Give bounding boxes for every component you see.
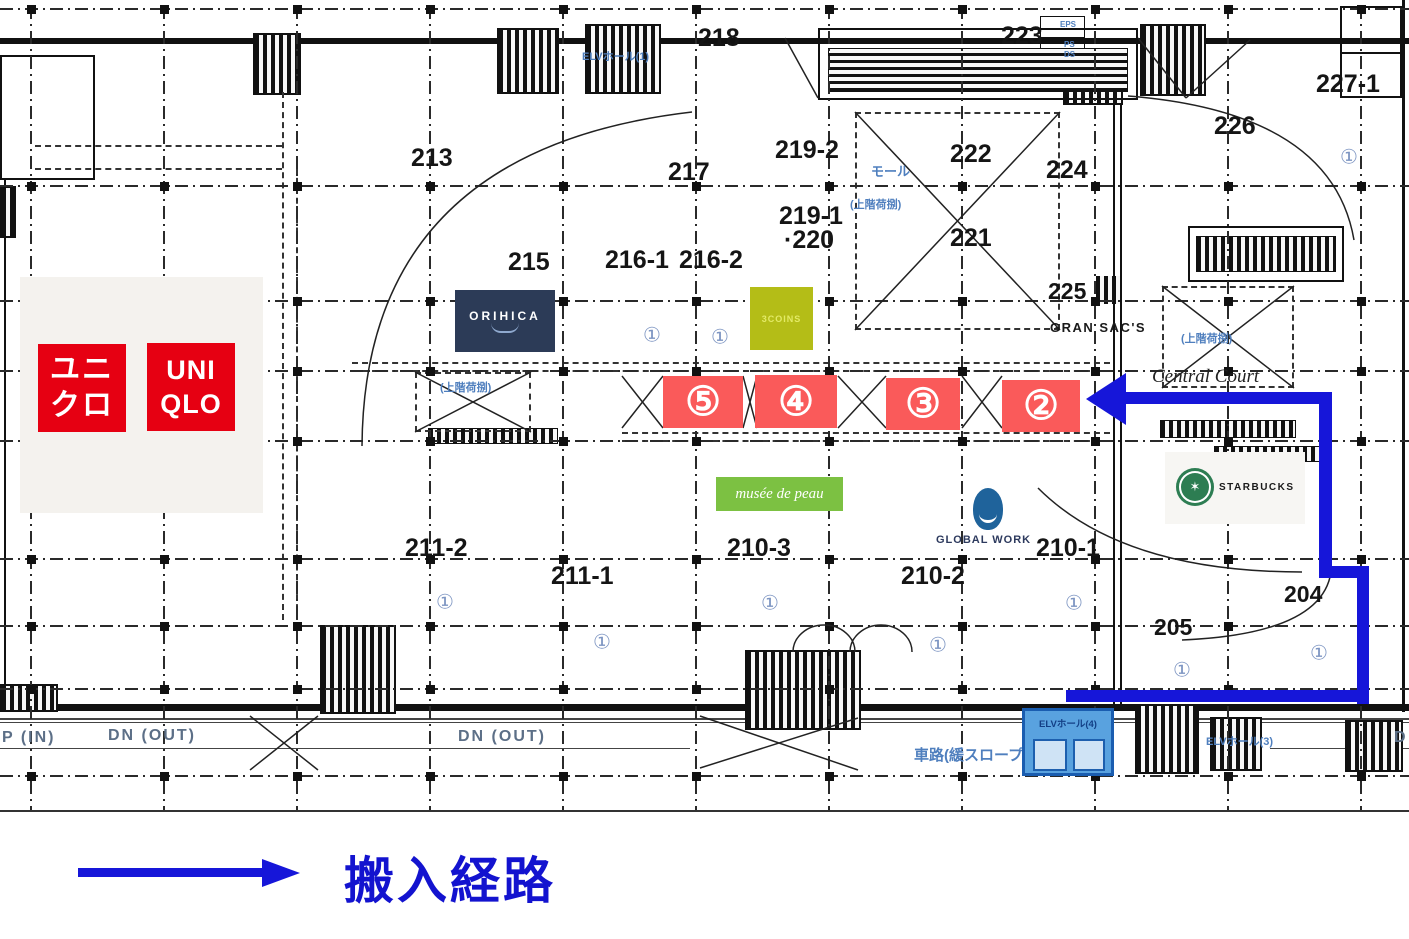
floor-plan: ユニ クロ UNI QLO ORIHICA 3COINS musée de pe… <box>0 0 1409 813</box>
route-segment-bottom <box>1066 690 1369 702</box>
plan-annotation: 車路(緩スロープ) <box>914 744 1028 765</box>
room-label: 223 <box>1001 22 1043 51</box>
elevator-car <box>1033 739 1067 771</box>
plan-annotation: モール <box>871 161 910 180</box>
ramp-label: P (IN) <box>2 729 55 747</box>
legend-arrow-head-icon <box>262 859 300 887</box>
uniqlo-jp-top: ユニ <box>50 352 114 388</box>
plan-annotation: (上階荷捌) <box>850 196 901 212</box>
route-segment-top <box>1120 392 1332 404</box>
room-label: 218 <box>698 24 740 53</box>
uniqlo-jp-square: ユニ クロ <box>38 344 126 432</box>
room-label: 205 <box>1154 614 1192 641</box>
uniqlo-en-bottom: QLO <box>160 387 222 421</box>
three-coins-logo: 3COINS <box>750 287 813 350</box>
plan-annotation: EPS <box>1060 20 1076 29</box>
room-label: 216-1 <box>605 246 669 275</box>
plan-annotation: (上階荷捌) <box>440 379 491 395</box>
room-label: 210-2 <box>901 562 965 591</box>
circled-one-marker: ① <box>1173 658 1191 683</box>
room-label: 210-3 <box>727 534 791 563</box>
ramp-label: DN (OUT) <box>458 728 546 746</box>
room-label: 222 <box>950 140 992 169</box>
musee-de-peau-logo: musée de peau <box>716 477 843 511</box>
starbucks-siren-icon: ✶ <box>1176 468 1214 506</box>
circled-one-marker: ① <box>1065 591 1083 616</box>
room-label: ·220 <box>784 226 834 255</box>
room-label: 211-2 <box>405 534 468 563</box>
route-segment-down-2 <box>1357 566 1369 704</box>
room-label: 227-1 <box>1316 70 1380 99</box>
room-label: 226 <box>1214 112 1256 141</box>
room-label: 221 <box>950 224 992 253</box>
circled-one-marker: ① <box>711 325 729 350</box>
uniqlo-en-top: UNI <box>166 353 216 387</box>
circled-one-marker: ① <box>643 323 661 348</box>
room-label: 225 <box>1048 278 1086 305</box>
plan-annotation: PS <box>1064 40 1075 49</box>
plan-annotation: (上階荷捌) <box>1181 330 1232 346</box>
ramp-label: D <box>1394 729 1408 747</box>
global-work-logo: GLOBAL WORK <box>936 488 1046 550</box>
ramp-label: DN (OUT) <box>108 727 196 745</box>
unit-badge: ④ <box>755 375 837 428</box>
circled-one-marker: ① <box>436 590 454 615</box>
route-segment-down-1 <box>1319 392 1332 578</box>
elevator-hall-4-highlight: ELVホール(4) <box>1022 708 1114 776</box>
floorplan-screenshot: ユニ クロ UNI QLO ORIHICA 3COINS musée de pe… <box>0 0 1409 939</box>
unit-badge: ③ <box>886 378 960 430</box>
uniqlo-en-square: UNI QLO <box>147 343 235 431</box>
elevator-hall-4-label: ELVホール(4) <box>1025 716 1111 730</box>
central-court-label: Central Court <box>1152 366 1259 388</box>
orihica-swoosh <box>491 323 519 333</box>
room-label: 210-1 <box>1036 534 1100 563</box>
three-coins-logo-text: 3COINS <box>762 314 802 324</box>
circled-one-marker: ① <box>761 591 779 616</box>
orihica-logo-text: ORIHICA <box>469 309 541 323</box>
elevator-car <box>1073 739 1105 771</box>
starbucks-logo: ✶ STARBUCKS <box>1165 452 1305 524</box>
room-label: 216-2 <box>679 246 743 275</box>
uniqlo-logo: ユニ クロ UNI QLO <box>20 277 263 513</box>
orihica-logo: ORIHICA <box>455 290 555 352</box>
room-label: 224 <box>1046 156 1088 185</box>
room-label: 211-1 <box>551 562 614 591</box>
global-work-logo-text: GLOBAL WORK <box>936 534 1031 546</box>
plan-annotation: DS <box>1064 50 1075 59</box>
global-work-smile <box>979 512 997 523</box>
circled-one-marker: ① <box>929 633 947 658</box>
musee-de-peau-logo-text: musée de peau <box>735 486 823 503</box>
room-label: 213 <box>411 144 453 173</box>
circled-one-marker: ① <box>1340 145 1358 170</box>
legend-route-label: 搬入経路 <box>344 841 556 913</box>
room-label: 217 <box>668 158 710 187</box>
room-label: 215 <box>508 248 550 277</box>
plan-annotation: ELVホール(3) <box>1206 733 1273 749</box>
uniqlo-jp-bottom: クロ <box>50 388 114 424</box>
legend-arrow-line <box>78 868 262 877</box>
gran-sacs-label: GRAN SAC'S <box>1050 320 1146 335</box>
unit-badge: ⑤ <box>663 376 743 428</box>
legend: 搬入経路 <box>0 813 1409 939</box>
plan-annotation: ELVホール(1) <box>582 48 649 64</box>
starbucks-logo-text: STARBUCKS <box>1219 482 1295 493</box>
global-work-mark <box>973 488 1003 530</box>
room-label: 219-2 <box>775 136 839 165</box>
unit-badge: ② <box>1002 380 1080 432</box>
circled-one-marker: ① <box>593 630 611 655</box>
room-label: 204 <box>1284 581 1322 608</box>
circled-one-marker: ① <box>1310 641 1328 666</box>
